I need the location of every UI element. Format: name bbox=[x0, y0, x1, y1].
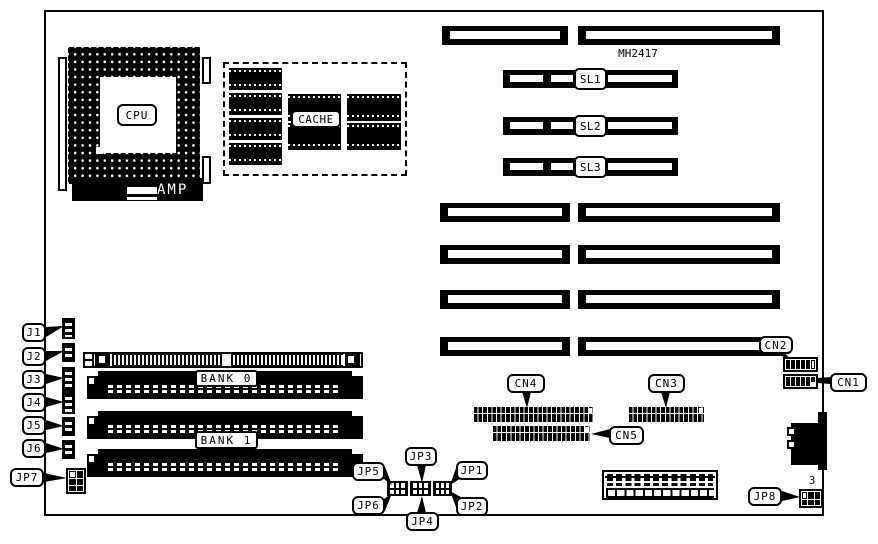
callout-pointer-jp8 bbox=[782, 491, 800, 501]
jp2-label: JP2 bbox=[456, 497, 488, 516]
j3-label: J3 bbox=[22, 370, 46, 389]
callout-pointer-cn5 bbox=[591, 429, 610, 438]
jp1-label: JP1 bbox=[456, 461, 488, 480]
jp6-label: JP6 bbox=[352, 496, 385, 515]
callout-pointer-jp3 bbox=[417, 465, 426, 483]
callout-pointer-j1 bbox=[46, 326, 64, 337]
sl2-label: SL2 bbox=[574, 115, 607, 137]
j6-label: J6 bbox=[22, 439, 46, 458]
motherboard-diagram: CPU AMP CACHE MH2417 SL1 SL2 SL3 bbox=[0, 0, 878, 544]
jp5-label: JP5 bbox=[352, 462, 385, 481]
j2-label: J2 bbox=[22, 347, 46, 366]
jp7-label: JP7 bbox=[10, 468, 44, 487]
cn4-label: CN4 bbox=[507, 374, 545, 393]
callout-pointer-cn3 bbox=[661, 392, 670, 408]
callout-pointer-j3 bbox=[46, 374, 64, 384]
j5-label: J5 bbox=[22, 416, 46, 435]
callout-pointer-j5 bbox=[46, 420, 64, 430]
jp4-label: JP4 bbox=[406, 512, 439, 531]
callout-pointers bbox=[0, 0, 878, 544]
jp3-label: JP3 bbox=[405, 447, 437, 466]
bank1-label: BANK 1 bbox=[195, 431, 258, 449]
callout-pointer-j4 bbox=[46, 397, 64, 407]
callout-pointer-jp4 bbox=[417, 496, 426, 513]
sl3-label: SL3 bbox=[574, 156, 607, 178]
j4-label: J4 bbox=[22, 393, 46, 412]
callout-pointer-cn1 bbox=[817, 377, 831, 384]
j1-label: J1 bbox=[22, 323, 46, 342]
callout-pointer-jp7 bbox=[44, 473, 67, 482]
jp8-label: JP8 bbox=[748, 487, 782, 506]
cn5-label: CN5 bbox=[609, 426, 644, 445]
bank0-label: BANK 0 bbox=[195, 370, 258, 387]
cache-label: CACHE bbox=[291, 110, 341, 128]
cpu-label: CPU bbox=[117, 104, 157, 126]
callout-pointer-j2 bbox=[46, 351, 64, 361]
callout-pointer-cn4 bbox=[522, 392, 531, 408]
sl1-label: SL1 bbox=[574, 68, 607, 90]
callout-pointer-j6 bbox=[46, 443, 64, 453]
cn2-label: CN2 bbox=[759, 336, 793, 354]
cn1-label: CN1 bbox=[830, 373, 867, 392]
cn3-label: CN3 bbox=[648, 374, 685, 393]
